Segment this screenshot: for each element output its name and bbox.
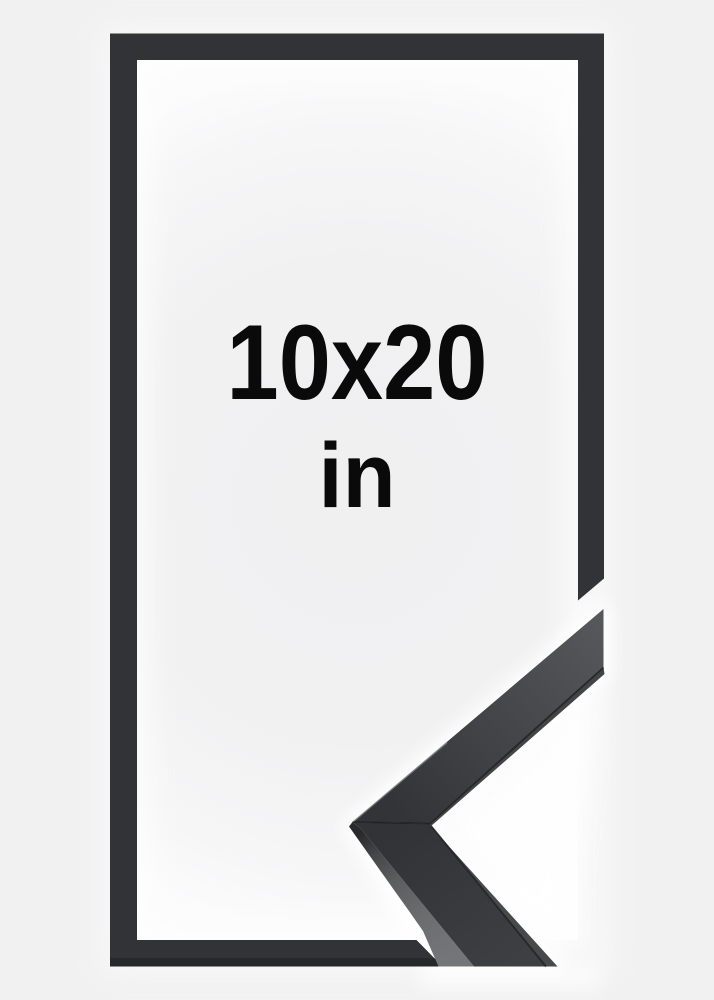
svg-text:10x20: 10x20 [227,302,488,422]
svg-text:in: in [319,425,396,527]
